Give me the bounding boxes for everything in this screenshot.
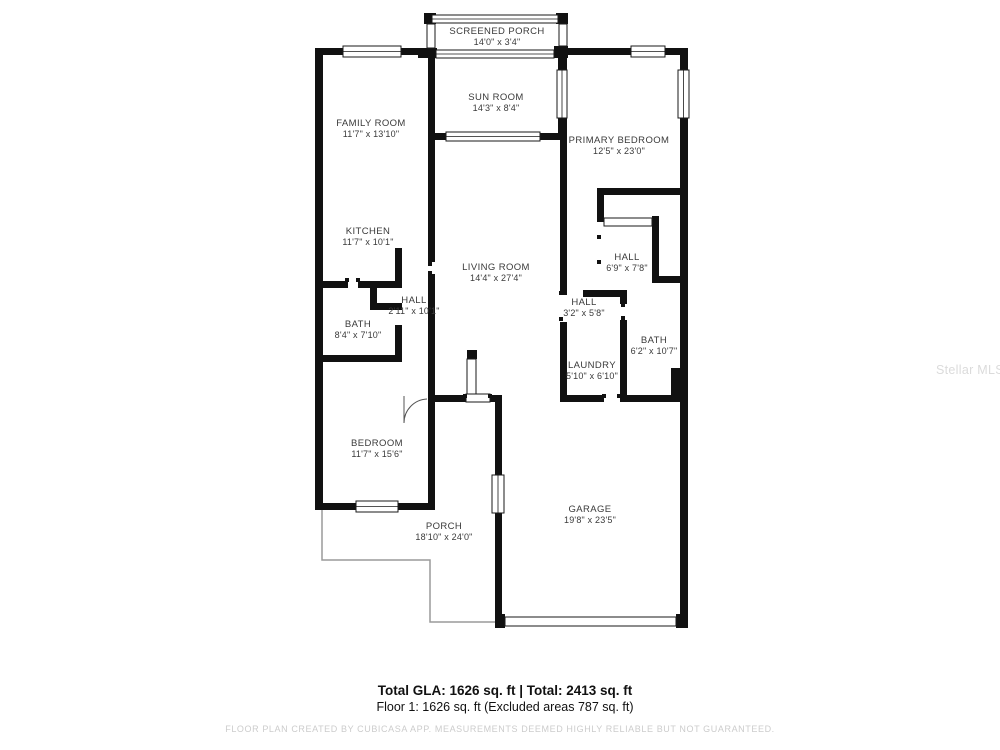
total-gla-text: Total GLA: 1626 sq. ft | Total: 2413 sq.…: [376, 683, 633, 699]
floor1-area-text: Floor 1: 1626 sq. ft (Excluded areas 787…: [376, 699, 633, 715]
walls: [315, 13, 688, 628]
area-summary: Total GLA: 1626 sq. ft | Total: 2413 sq.…: [376, 683, 633, 715]
floor-plan-drawing: [0, 0, 1000, 750]
floor-plan-page: SCREENED PORCH 14'0" x 3'4" SUN ROOM 14'…: [0, 0, 1000, 750]
porch-outline: [322, 510, 497, 622]
door-swing: [404, 396, 427, 423]
stellar-mls-watermark: Stellar MLS: [936, 363, 1000, 377]
windows: [343, 15, 689, 626]
disclaimer-text: FLOOR PLAN CREATED BY CUBICASA APP. MEAS…: [225, 724, 775, 734]
door-jamb-ticks: [345, 235, 625, 398]
